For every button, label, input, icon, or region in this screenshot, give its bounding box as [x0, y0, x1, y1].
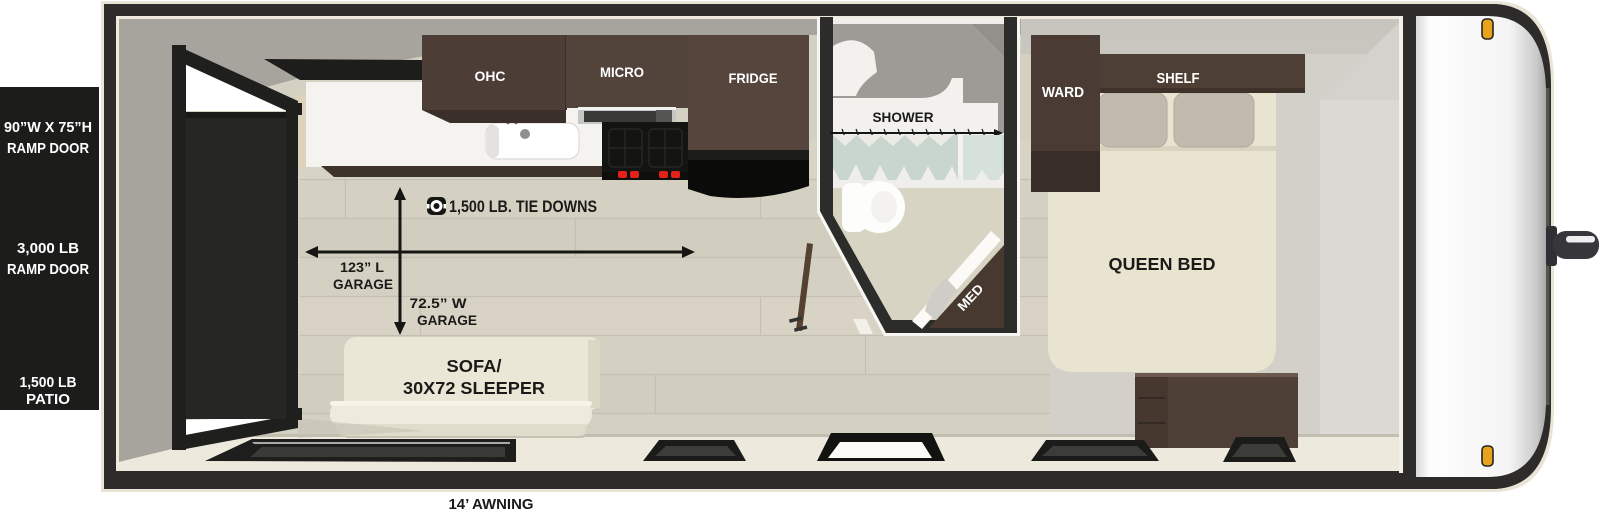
svg-text:SHELF: SHELF	[1157, 70, 1200, 87]
svg-text:3,000 LB: 3,000 LB	[17, 240, 79, 257]
svg-text:1,500 LB: 1,500 LB	[20, 374, 77, 391]
svg-text:FRIDGE: FRIDGE	[729, 70, 778, 86]
svg-text:WARD: WARD	[1042, 84, 1084, 101]
svg-text:72.5” W: 72.5” W	[410, 295, 468, 311]
svg-text:SOFA/: SOFA/	[447, 356, 502, 376]
svg-text:RAMP DOOR: RAMP DOOR	[7, 261, 89, 278]
svg-text:30X72 SLEEPER: 30X72 SLEEPER	[403, 378, 545, 398]
svg-text:GARAGE: GARAGE	[417, 312, 477, 328]
svg-text:PATIO: PATIO	[26, 391, 70, 408]
svg-text:90”W X 75”H: 90”W X 75”H	[4, 119, 92, 136]
svg-text:1,500 LB. TIE DOWNS: 1,500 LB. TIE DOWNS	[449, 197, 597, 216]
svg-text:GARAGE: GARAGE	[333, 276, 393, 292]
svg-text:SHOWER: SHOWER	[873, 109, 934, 125]
svg-text:14’ AWNING: 14’ AWNING	[449, 496, 534, 511]
svg-text:MICRO: MICRO	[600, 64, 644, 80]
svg-text:OHC: OHC	[475, 68, 506, 84]
svg-text:RAMP DOOR: RAMP DOOR	[7, 140, 89, 157]
svg-text:QUEEN BED: QUEEN BED	[1109, 254, 1216, 274]
svg-text:123” L: 123” L	[340, 259, 384, 275]
